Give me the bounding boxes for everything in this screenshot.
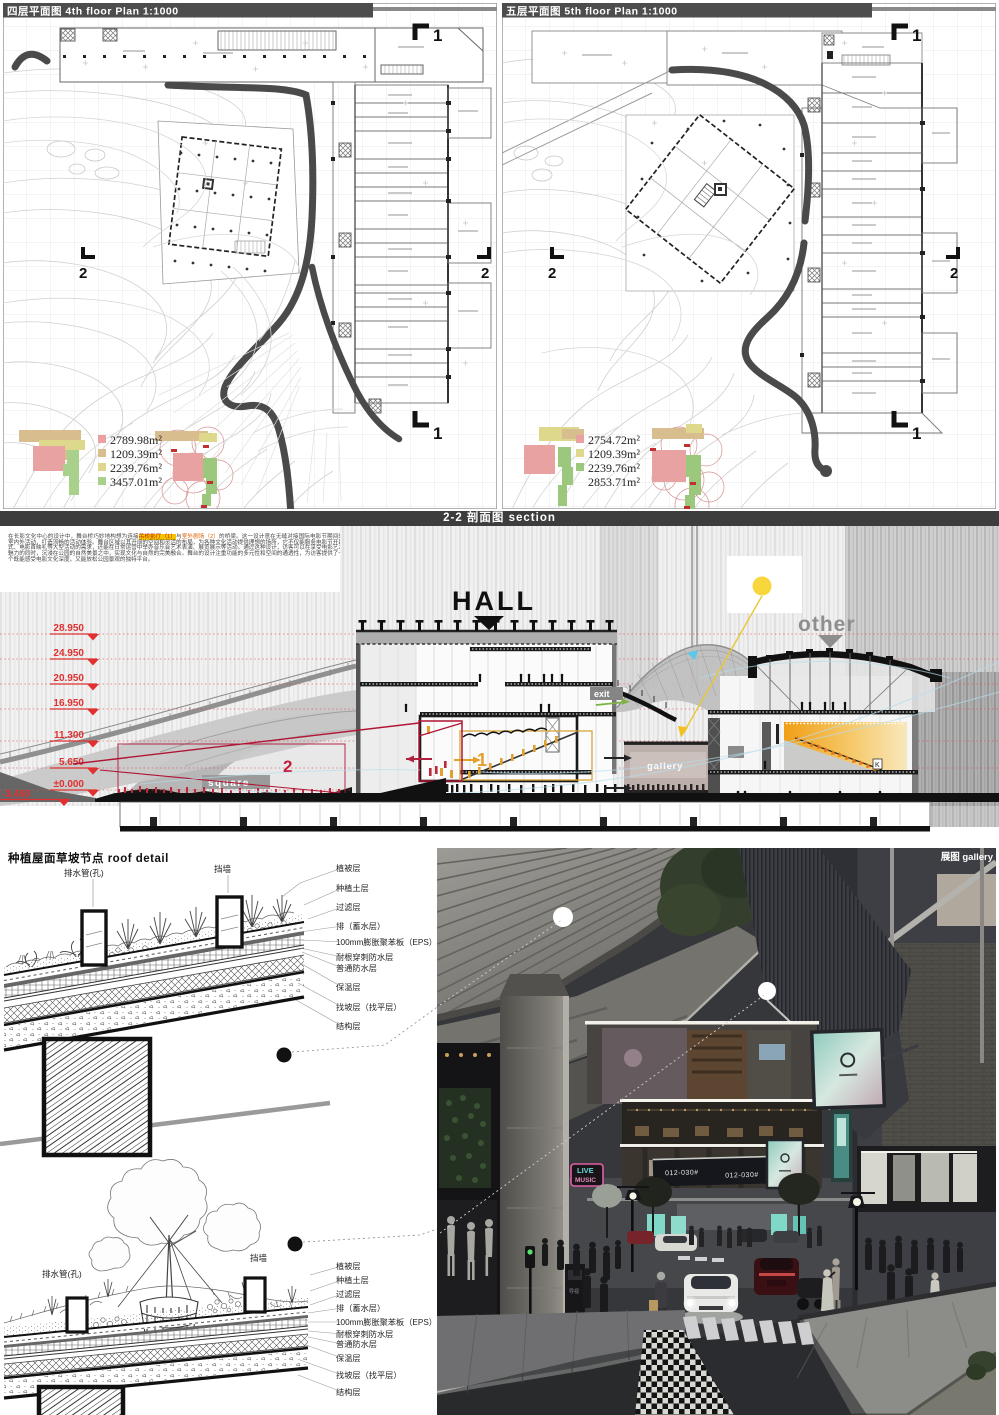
svg-text:2: 2 [548, 265, 556, 282]
svg-text:20.950: 20.950 [53, 673, 84, 684]
svg-text:HALL: HALL [452, 586, 536, 616]
svg-text:2: 2 [79, 265, 87, 282]
svg-text:种植土层: 种植土层 [336, 1275, 369, 1285]
svg-text:11.300: 11.300 [54, 730, 84, 741]
svg-text:012-030#: 012-030# [665, 1169, 699, 1177]
svg-text:四层平面图 4th floor Plan 1:1000: 四层平面图 4th floor Plan 1:1000 [7, 6, 179, 18]
svg-text:过滤层: 过滤层 [336, 1289, 361, 1299]
svg-text:种植土层: 种植土层 [336, 883, 369, 893]
svg-text:2: 2 [950, 265, 958, 282]
svg-text:结构层: 结构层 [336, 1021, 361, 1031]
svg-text:1: 1 [433, 424, 442, 443]
svg-text:植被层: 植被层 [336, 863, 361, 873]
svg-text:植被层: 植被层 [336, 1261, 361, 1271]
svg-text:2754.72m²: 2754.72m² [588, 433, 640, 447]
svg-text:MUSIC: MUSIC [575, 1177, 596, 1184]
svg-text:结构层: 结构层 [336, 1387, 361, 1397]
svg-text:过滤层: 过滤层 [336, 902, 361, 912]
svg-text:排（蓄水层）: 排（蓄水层） [336, 1303, 385, 1313]
svg-text:挡墙: 挡墙 [250, 1253, 268, 1263]
svg-text:排（蓄水层）: 排（蓄水层） [336, 921, 385, 931]
svg-text:导视: 导视 [569, 1288, 579, 1295]
svg-text:展图 gallery: 展图 gallery [941, 852, 994, 863]
svg-text:挡墙: 挡墙 [214, 864, 232, 874]
svg-text:exit: exit [594, 689, 610, 699]
svg-text:耐根穿刺防水层: 耐根穿刺防水层 [336, 1329, 393, 1339]
svg-text:2: 2 [481, 265, 489, 282]
svg-text:100mm膨胀聚苯板（EPS）: 100mm膨胀聚苯板（EPS） [336, 1317, 437, 1327]
svg-text:2239.76m²: 2239.76m² [110, 461, 162, 475]
svg-text:2789.98m²: 2789.98m² [110, 433, 162, 447]
svg-text:±0.000: ±0.000 [53, 779, 84, 790]
svg-text:K: K [875, 762, 880, 769]
svg-text:耐根穿刺防水层: 耐根穿刺防水层 [336, 952, 393, 962]
svg-text:-3.450: -3.450 [2, 789, 31, 800]
svg-text:16.950: 16.950 [53, 698, 84, 709]
svg-text:100mm膨胀聚苯板（EPS）: 100mm膨胀聚苯板（EPS） [336, 937, 437, 947]
svg-text:保温层: 保温层 [336, 1353, 361, 1363]
svg-text:1209.39m²: 1209.39m² [588, 447, 640, 461]
svg-text:28.950: 28.950 [53, 623, 84, 634]
svg-text:1: 1 [912, 26, 921, 45]
svg-text:找坡层（找平层）: 找坡层（找平层） [336, 1002, 402, 1012]
svg-text:排水管(孔): 排水管(孔) [64, 868, 104, 878]
svg-text:2853.71m²: 2853.71m² [588, 475, 640, 489]
svg-text:找坡层（找平层）: 找坡层（找平层） [336, 1370, 402, 1380]
svg-text:other: other [798, 613, 856, 636]
svg-text:普通防水层: 普通防水层 [336, 963, 377, 973]
svg-text:24.950: 24.950 [53, 648, 84, 659]
svg-text:1: 1 [433, 26, 442, 45]
svg-text:排水管(孔): 排水管(孔) [42, 1269, 82, 1279]
svg-text:1: 1 [912, 424, 921, 443]
svg-text:LIVE: LIVE [577, 1166, 594, 1175]
svg-text:种植屋面草坡节点 roof detail: 种植屋面草坡节点 roof detail [7, 851, 169, 865]
svg-text:2239.76m²: 2239.76m² [588, 461, 640, 475]
svg-text:012-030#: 012-030# [725, 1172, 759, 1180]
svg-text:3457.01m²: 3457.01m² [110, 475, 162, 489]
svg-text:普通防水层: 普通防水层 [336, 1339, 377, 1349]
svg-text:五层平面图 5th floor Plan 1:1000: 五层平面图 5th floor Plan 1:1000 [506, 6, 678, 18]
svg-text:保温层: 保温层 [336, 982, 361, 992]
svg-text:1209.39m²: 1209.39m² [110, 447, 162, 461]
